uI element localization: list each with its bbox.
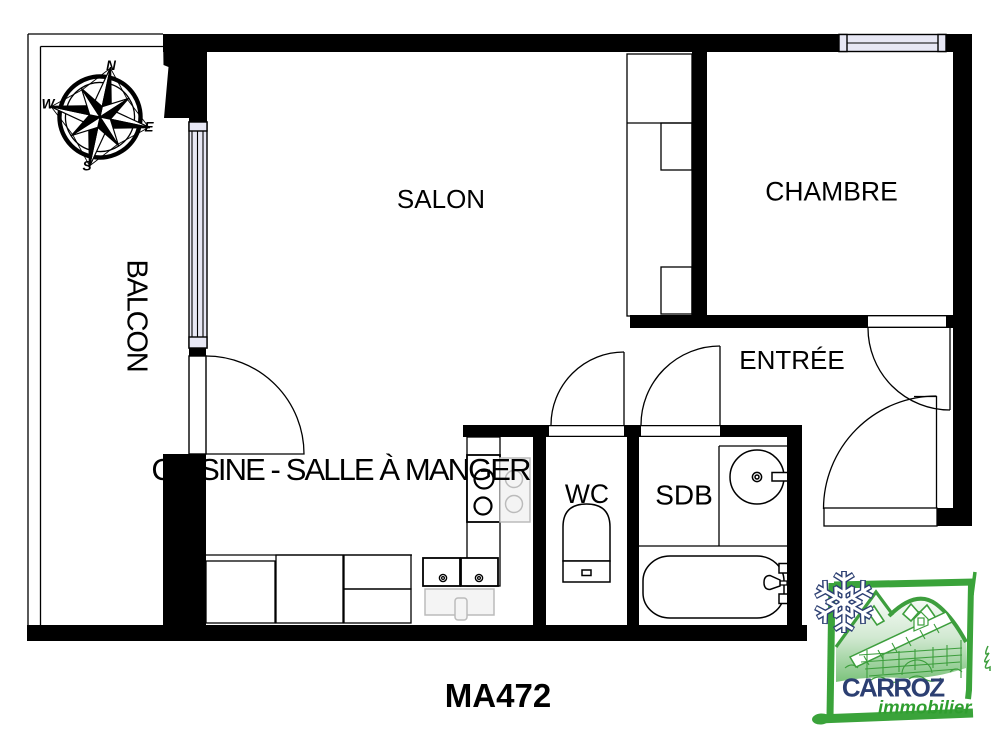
svg-text:N: N — [106, 58, 116, 73]
svg-text:CUISINE - SALLE À MANGER: CUISINE - SALLE À MANGER — [151, 452, 530, 487]
svg-text:SALON: SALON — [397, 184, 485, 214]
svg-text:SDB: SDB — [655, 480, 713, 511]
svg-text:WC: WC — [565, 479, 609, 509]
svg-text:W: W — [42, 97, 56, 112]
svg-text:CHAMBRE: CHAMBRE — [765, 177, 898, 207]
svg-text:immobilier: immobilier — [878, 697, 973, 718]
svg-text:ENTRÉE: ENTRÉE — [739, 345, 844, 375]
svg-text:E: E — [144, 120, 154, 135]
svg-text:BALCON: BALCON — [120, 259, 152, 371]
svg-text:S: S — [82, 159, 91, 174]
svg-text:MA472: MA472 — [445, 677, 551, 714]
